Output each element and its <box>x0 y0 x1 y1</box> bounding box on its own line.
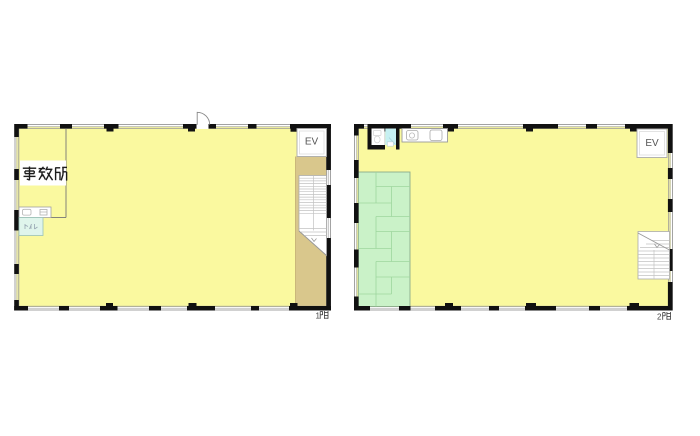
svg-text:EV: EV <box>645 138 659 149</box>
svg-text:1: 1 <box>316 312 321 321</box>
svg-text:EV: EV <box>305 137 319 148</box>
svg-text:2: 2 <box>657 313 662 322</box>
